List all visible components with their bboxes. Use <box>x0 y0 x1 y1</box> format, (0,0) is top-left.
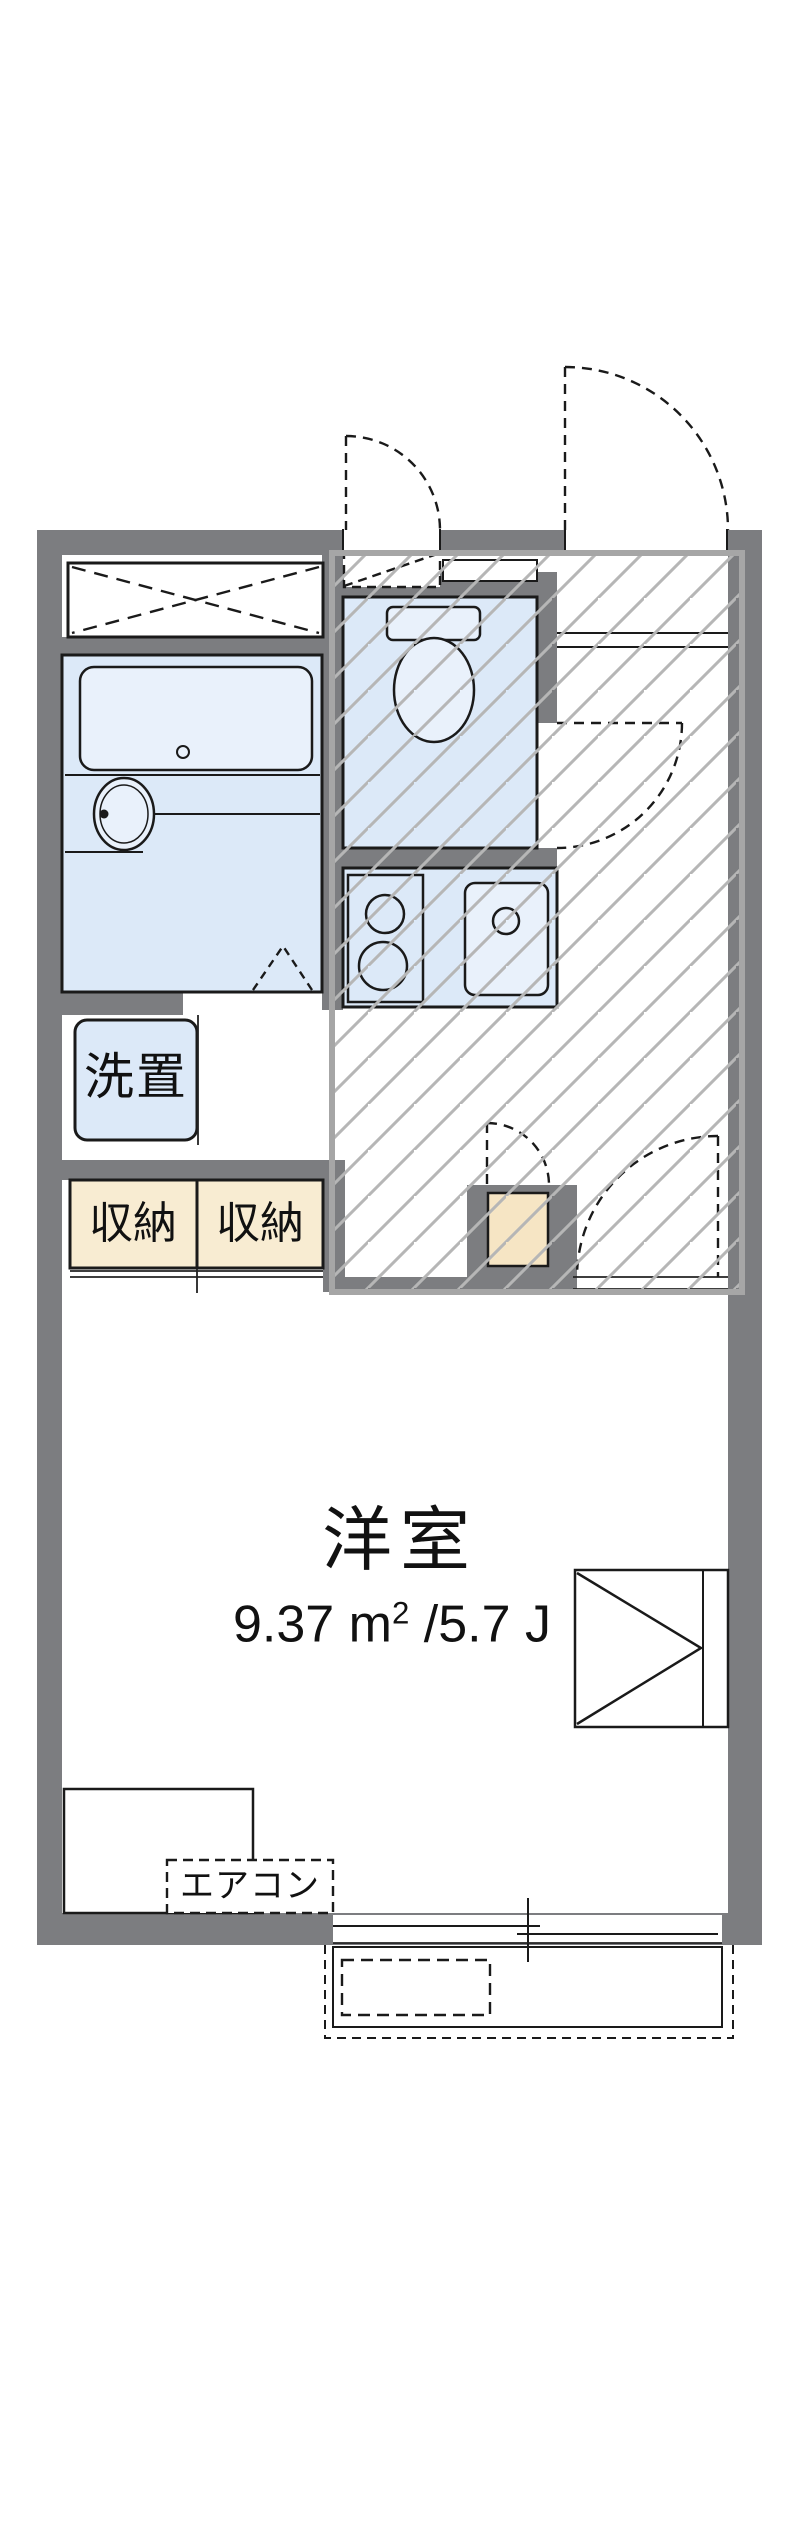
aircon-label: エアコン <box>180 1869 320 1903</box>
bathroom <box>62 655 322 992</box>
bathtub <box>80 667 312 770</box>
window-symbol <box>575 1570 728 1727</box>
service-door-swing <box>346 436 440 530</box>
ac-outdoor-unit <box>342 1960 490 2015</box>
basin-faucet <box>100 810 109 819</box>
storage-label-left: 収納 <box>89 1202 177 1246</box>
floor-plan-drawing <box>0 0 800 2527</box>
entrance-door-swing <box>565 367 728 530</box>
entry-storage-xbox <box>68 563 323 637</box>
room-name-label: 洋室 <box>322 1505 478 1575</box>
laundry-label: 洗置 <box>84 1052 188 1102</box>
storage-label-right: 収納 <box>216 1202 304 1246</box>
floor-plan-canvas: 洗置 収納 収納 洋室 9.37 m2 /5.7 J エアコン <box>0 0 800 2527</box>
hatch-zone <box>332 553 742 1292</box>
room-area-label: 9.37 m2 /5.7 J <box>233 1597 551 1650</box>
